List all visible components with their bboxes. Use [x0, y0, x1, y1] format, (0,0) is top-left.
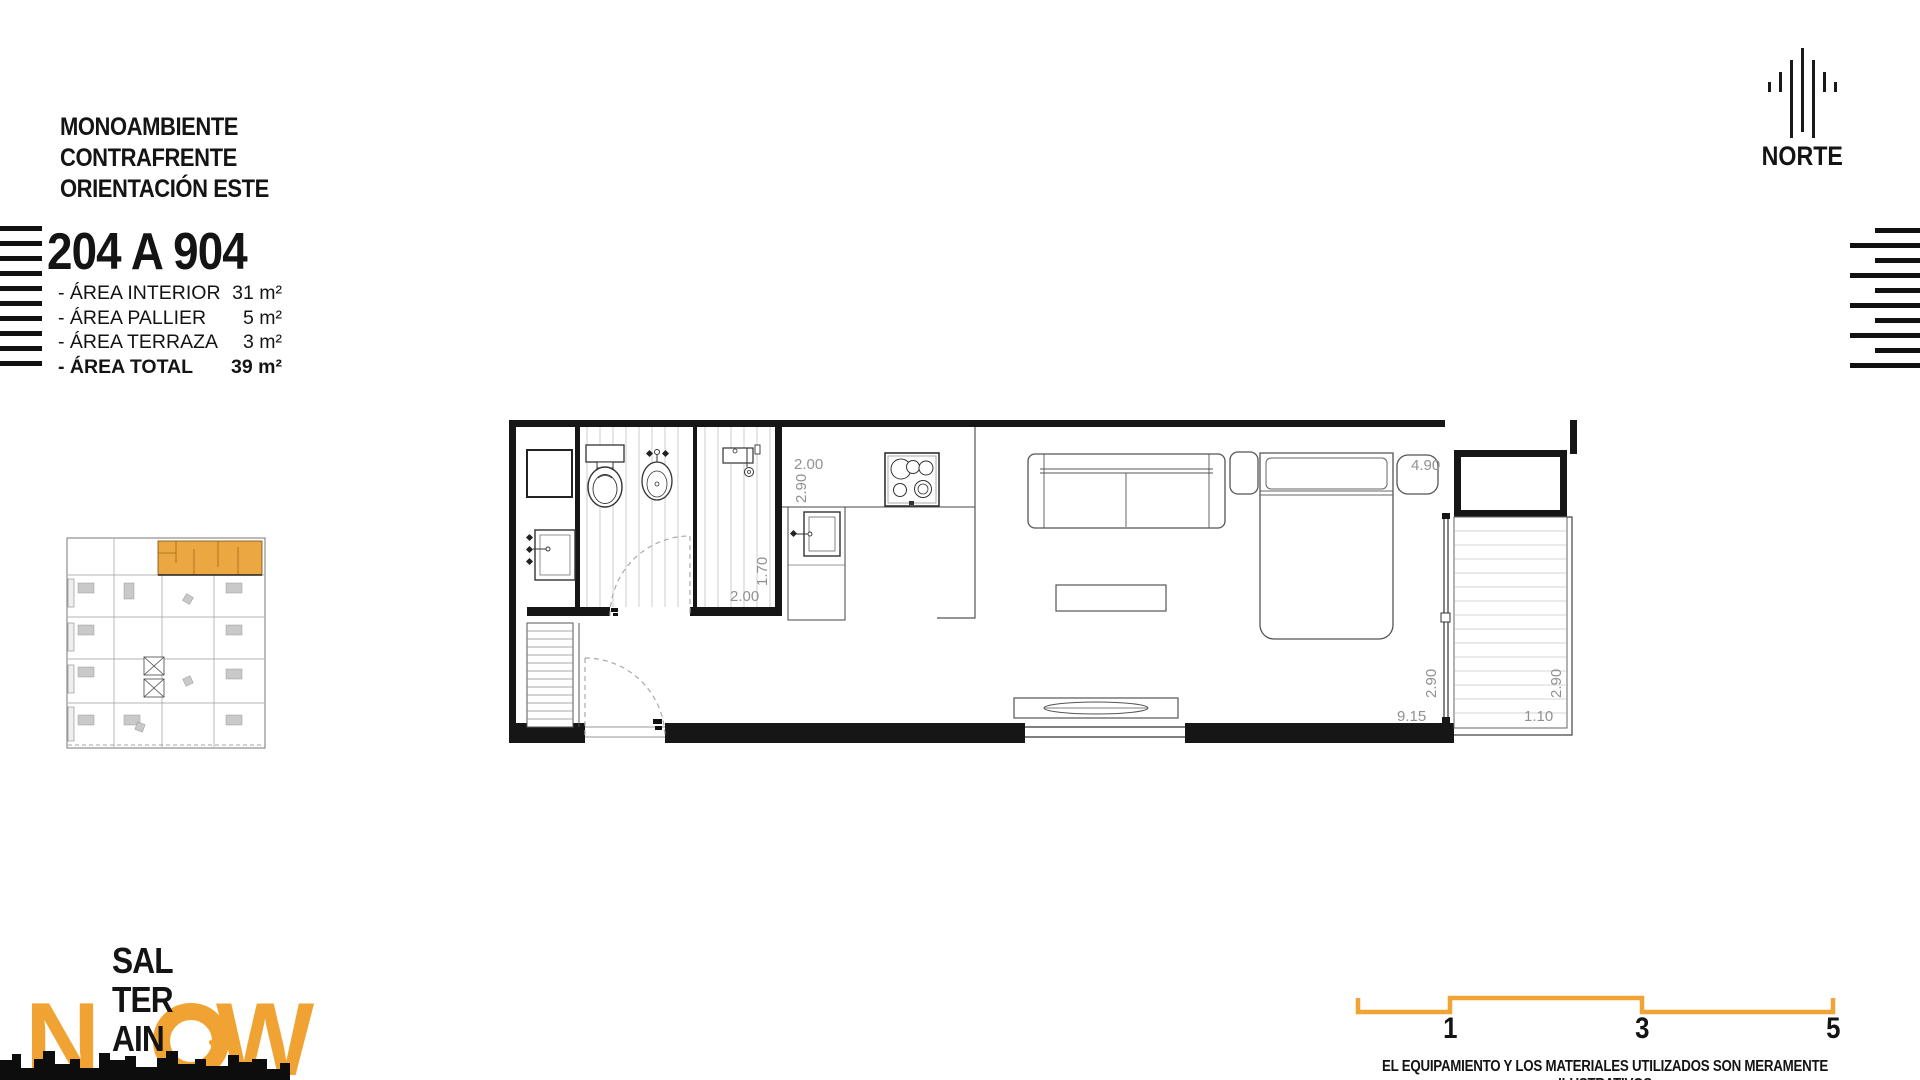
- area-table: - ÁREA INTERIOR 31 m² - ÁREA PALLIER 5 m…: [58, 281, 282, 379]
- dim-label: 1.70: [754, 557, 771, 586]
- dim-label: 2.00: [794, 456, 823, 473]
- terrace-deck: [1454, 517, 1572, 735]
- area-value: 3 m²: [243, 330, 282, 355]
- page-title: 204 A 904: [47, 222, 274, 282]
- brochure-page: MONOAMBIENTE CONTRAFRENTE ORIENTACIÓN ES…: [0, 0, 1920, 1080]
- dim-label: 9.15: [1397, 708, 1426, 725]
- coffee-table: [1056, 585, 1166, 611]
- area-row: - ÁREA TERRAZA 3 m²: [58, 330, 282, 355]
- scale-tick: 1: [1430, 1012, 1470, 1046]
- unit-type-block: MONOAMBIENTE CONTRAFRENTE ORIENTACIÓN ES…: [60, 112, 297, 205]
- bed: [1260, 453, 1393, 639]
- scale-tick: 5: [1813, 1012, 1853, 1046]
- north-label: NORTE: [1748, 141, 1856, 172]
- unit-type-line: MONOAMBIENTE: [60, 112, 238, 143]
- dim-label: 2.90: [1423, 669, 1440, 698]
- logo-line: TER: [112, 980, 173, 1019]
- shower-sink: [723, 445, 760, 477]
- cooktop: [885, 453, 939, 506]
- duct-shaft: [527, 450, 572, 497]
- area-row: - ÁREA PALLIER 5 m²: [58, 306, 282, 331]
- area-label: - ÁREA PALLIER: [58, 306, 206, 331]
- dim-label: 2.90: [793, 474, 810, 503]
- logo-line: SAL: [112, 941, 173, 980]
- area-value: 39 m²: [231, 355, 282, 380]
- key-plan: [66, 537, 266, 749]
- area-label: - ÁREA TOTAL: [58, 355, 193, 380]
- area-label: - ÁREA INTERIOR: [58, 281, 221, 306]
- scale-bar: [1350, 992, 1840, 1020]
- sofa: [1028, 454, 1225, 528]
- terrace-wall-block: [1458, 454, 1564, 514]
- area-row: - ÁREA INTERIOR 31 m²: [58, 281, 282, 306]
- floor-plan: 2.00 2.90 1.70 2.00 4.90 2.90 9.15 2.90 …: [509, 420, 1577, 746]
- area-value: 5 m²: [243, 306, 282, 331]
- tv-console: [1014, 698, 1178, 718]
- window-opening: [1025, 723, 1185, 743]
- dim-label: 2.90: [1548, 669, 1565, 698]
- terrace-glass-door: [1441, 513, 1450, 723]
- stairs: [527, 623, 579, 727]
- highlighted-unit: [158, 541, 262, 575]
- area-value: 31 m²: [232, 281, 282, 306]
- disclaimer-text: EL EQUIPAMIENTO Y LOS MATERIALES UTILIZA…: [1340, 1058, 1870, 1080]
- logo-line: AIN: [112, 1019, 164, 1058]
- scale-tick: 3: [1622, 1012, 1662, 1046]
- entry-door-opening: [585, 723, 665, 743]
- dim-label: 4.90: [1411, 457, 1440, 474]
- unit-type-line: ORIENTACIÓN ESTE: [60, 174, 269, 205]
- dim-label: 1.10: [1524, 708, 1553, 725]
- kitchen-partition: [937, 427, 975, 618]
- nightstand-left: [1230, 452, 1258, 494]
- area-row-total: - ÁREA TOTAL 39 m²: [58, 355, 282, 380]
- toilet: [586, 445, 624, 507]
- bidet: [642, 450, 672, 501]
- bathroom-door-latch: [611, 608, 618, 616]
- vanity-sink: [526, 530, 575, 580]
- brand-logo: SAL TER AIN: [112, 941, 181, 1058]
- dim-label: 2.00: [730, 588, 759, 605]
- area-label: - ÁREA TERRAZA: [58, 330, 218, 355]
- unit-type-line: CONTRAFRENTE: [60, 143, 237, 174]
